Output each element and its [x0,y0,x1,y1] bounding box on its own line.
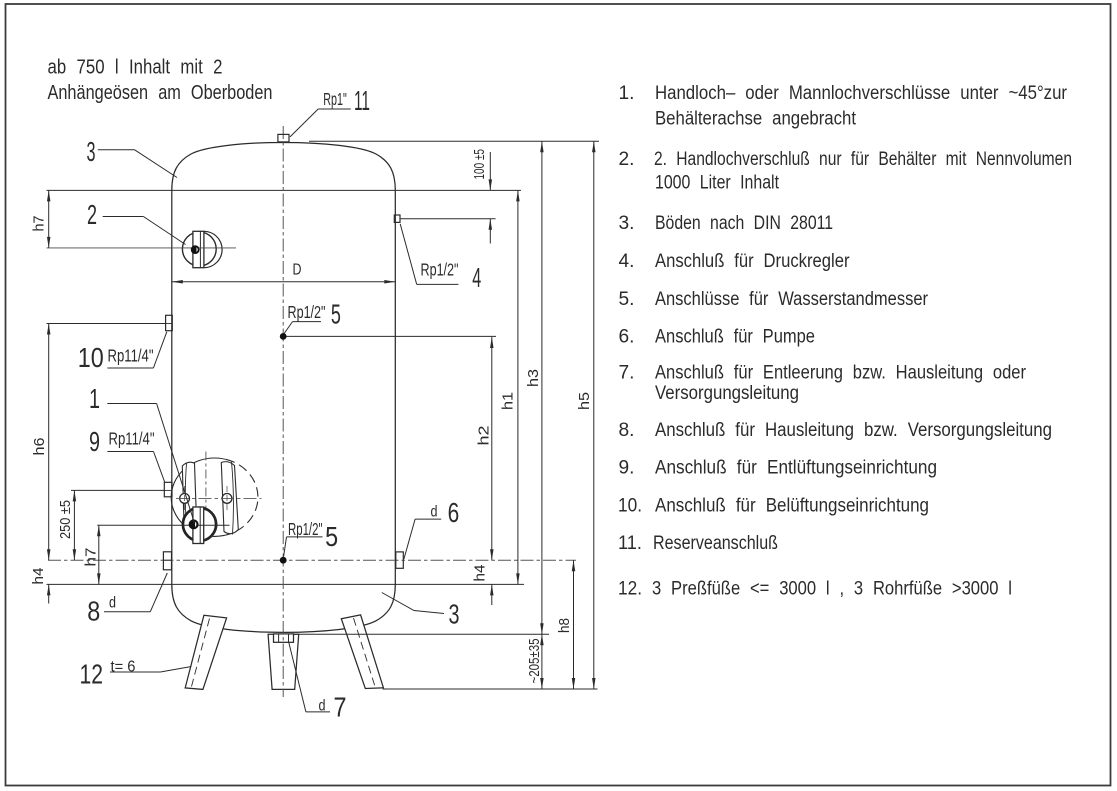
svg-text:h7: h7 [83,548,100,567]
svg-text:Rp1/2": Rp1/2" [288,519,323,539]
svg-text:Rp11/4": Rp11/4" [109,429,155,449]
svg-text:Rp1": Rp1" [323,89,347,109]
svg-text:2.: 2. [619,149,635,170]
svg-text:5: 5 [325,521,338,552]
svg-text:9: 9 [89,426,100,457]
svg-text:Handloch– oder Mannlochverschl: Handloch– oder Mannlochverschlüsse unter… [655,83,1068,104]
svg-text:~205±35: ~205±35 [527,639,543,684]
svg-text:h7: h7 [31,216,48,232]
svg-text:t= 6: t= 6 [111,659,136,676]
svg-text:Böden nach DIN 28011: Böden nach DIN 28011 [655,213,833,234]
svg-text:3: 3 [449,599,460,630]
svg-text:1000 Liter Inhalt: 1000 Liter Inhalt [655,173,780,194]
svg-text:7.: 7. [619,363,635,384]
svg-text:Anschluß für Hausleitung bzw.: Anschluß für Hausleitung bzw. Versorgung… [655,420,1052,441]
svg-text:h4: h4 [472,565,489,582]
svg-text:Anhängeösen am Oberboden: Anhängeösen am Oberboden [48,81,273,104]
svg-text:h2: h2 [476,426,493,446]
svg-text:Anschlüsse für Wasserstandmess: Anschlüsse für Wasserstandmesser [655,289,929,310]
svg-text:5.: 5. [619,289,635,310]
svg-text:h5: h5 [576,392,593,410]
svg-text:4: 4 [472,262,481,293]
svg-text:6: 6 [448,497,460,528]
svg-text:Anschluß für Belüftungseinrich: Anschluß für Belüftungseinrichtung [655,496,929,517]
svg-text:Versorgungsleitung: Versorgungsleitung [655,383,799,404]
svg-text:100 ±5: 100 ±5 [471,149,488,180]
svg-text:Rp1/2": Rp1/2" [288,302,326,322]
svg-text:Rp11/4": Rp11/4" [108,346,154,366]
svg-text:Anschluß für Entleerung bzw. H: Anschluß für Entleerung bzw. Hausleitung… [655,363,1027,384]
svg-text:D: D [293,262,302,279]
svg-text:h8: h8 [556,618,573,633]
svg-text:d: d [319,698,326,715]
svg-text:Reserveanschluß: Reserveanschluß [653,533,778,554]
svg-text:11: 11 [354,85,370,116]
svg-text:5: 5 [331,299,341,330]
svg-text:h6: h6 [31,438,48,456]
svg-text:9.: 9. [619,458,635,479]
svg-text:7: 7 [334,691,347,722]
svg-text:3: 3 [87,136,96,167]
svg-text:1.: 1. [619,83,635,104]
svg-text:Anschluß für Pumpe: Anschluß für Pumpe [655,327,815,348]
svg-text:12: 12 [80,658,104,689]
svg-text:Anschluß für Druckregler: Anschluß für Druckregler [655,251,850,272]
svg-text:Rp1/2": Rp1/2" [421,260,459,280]
svg-text:1: 1 [89,383,100,414]
svg-text:h3: h3 [525,369,542,387]
svg-text:ab 750 l Inhalt mit 2: ab 750 l Inhalt mit 2 [48,56,223,79]
svg-text:11.: 11. [618,533,642,554]
svg-text:10.: 10. [618,496,642,517]
svg-text:2. Handlochverschluß nur für B: 2. Handlochverschluß nur für Behälter mi… [654,149,1072,170]
svg-text:h4: h4 [30,568,47,585]
svg-text:250 ±5: 250 ±5 [57,500,74,539]
svg-text:Anschluß für Entlüftungseinric: Anschluß für Entlüftungseinrichtung [655,458,937,479]
svg-text:12.: 12. [618,579,642,600]
svg-text:d: d [109,595,116,612]
svg-text:d: d [431,504,438,521]
svg-text:3 Preßfüße <= 3000 l , 3 Rohrf: 3 Preßfüße <= 3000 l , 3 Rohrfüße >3000 … [652,579,1012,600]
svg-text:6.: 6. [619,327,635,348]
svg-text:Behälterachse angebracht: Behälterachse angebracht [655,109,857,130]
svg-text:8.: 8. [619,420,635,441]
svg-text:8: 8 [87,595,100,626]
svg-text:2: 2 [87,199,97,230]
svg-text:10: 10 [78,342,104,373]
svg-text:3.: 3. [619,213,635,234]
svg-text:h1: h1 [500,392,517,410]
svg-text:4.: 4. [619,251,635,272]
